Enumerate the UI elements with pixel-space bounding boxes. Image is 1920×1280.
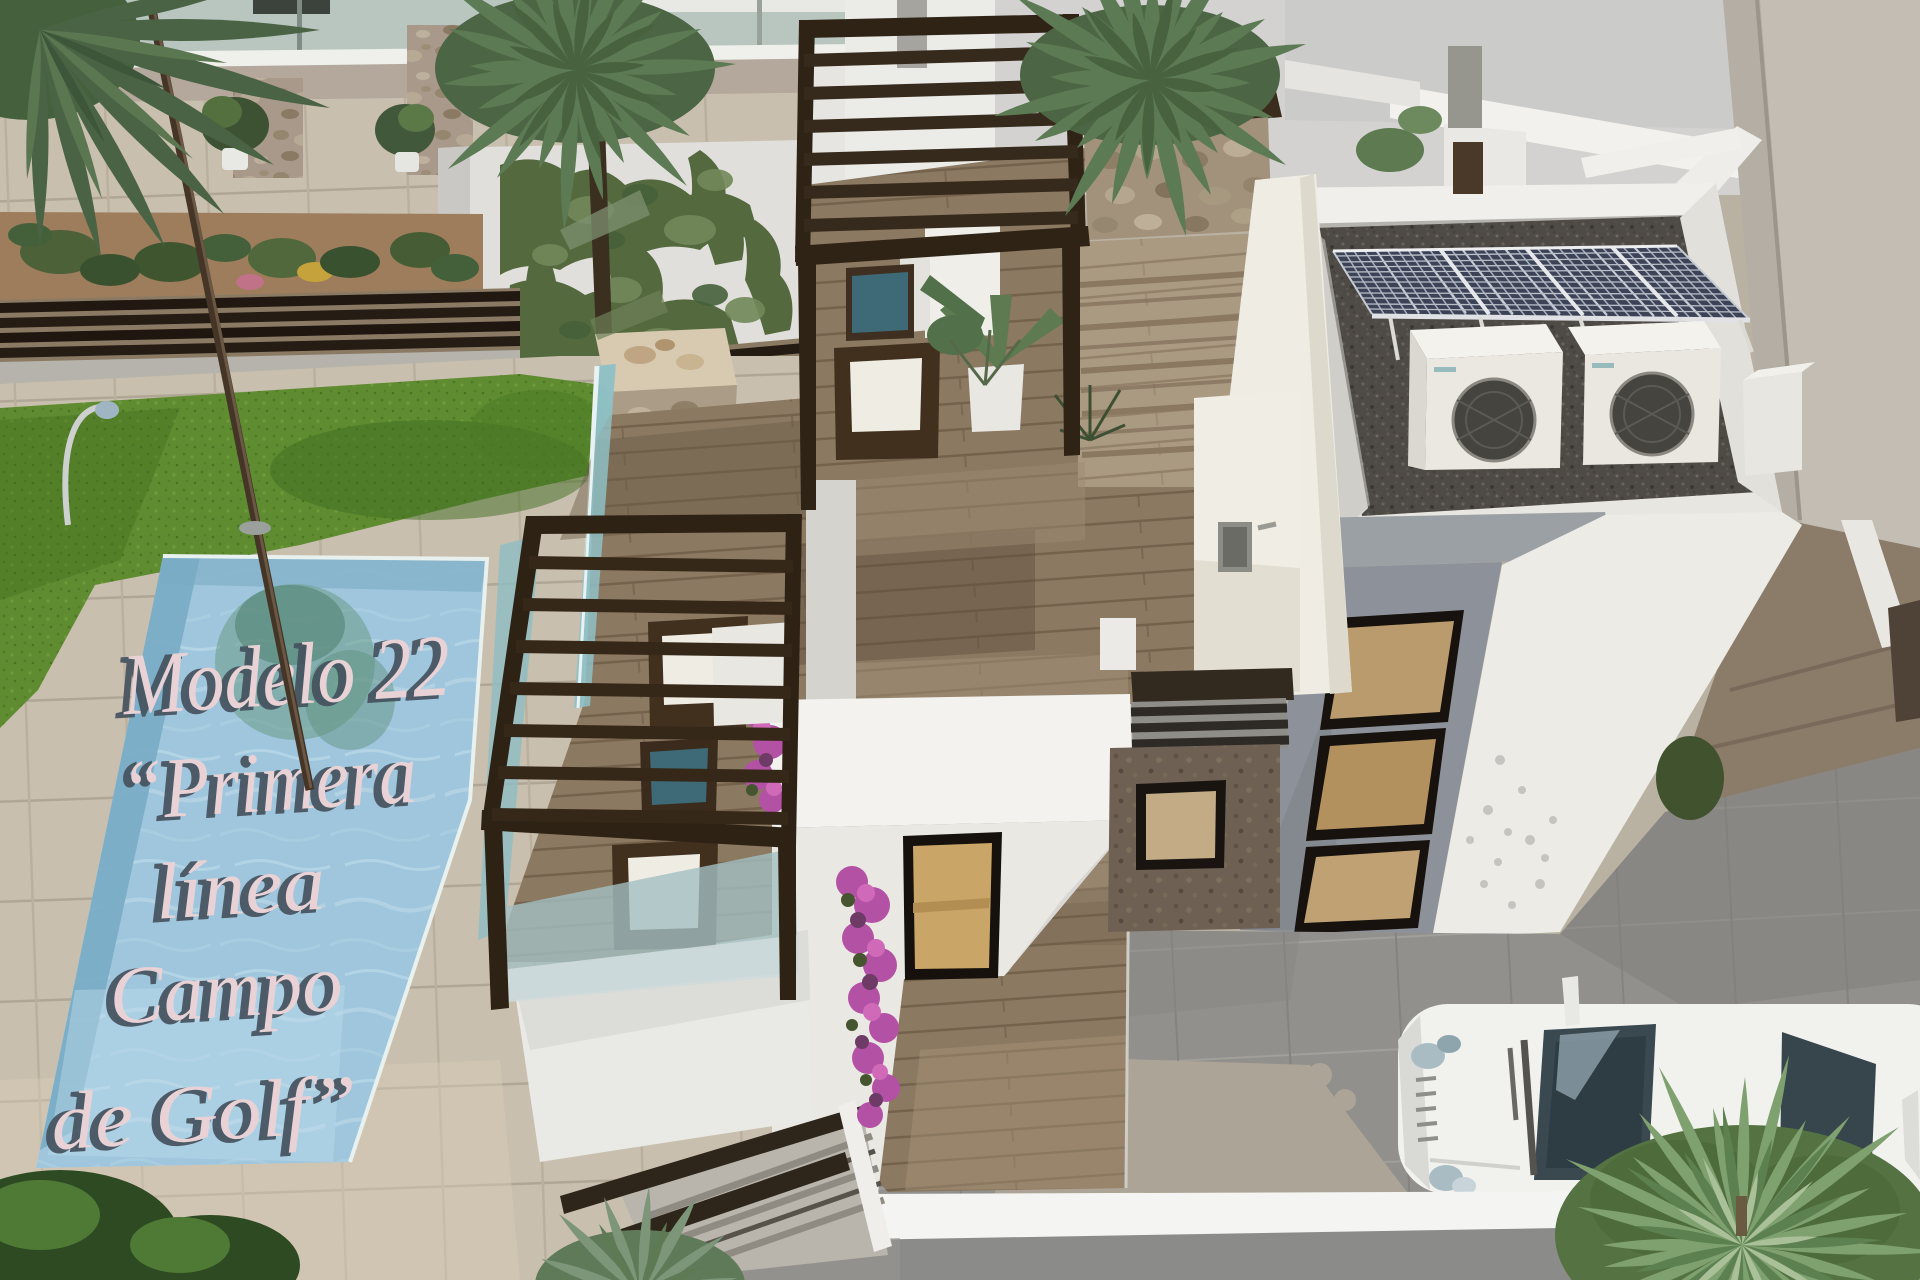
svg-text:“Primera: “Primera [118, 725, 419, 839]
svg-text:Campo: Campo [107, 937, 345, 1042]
svg-text:línea: línea [153, 839, 328, 937]
svg-text:de Golf”: de Golf” [48, 1058, 360, 1168]
